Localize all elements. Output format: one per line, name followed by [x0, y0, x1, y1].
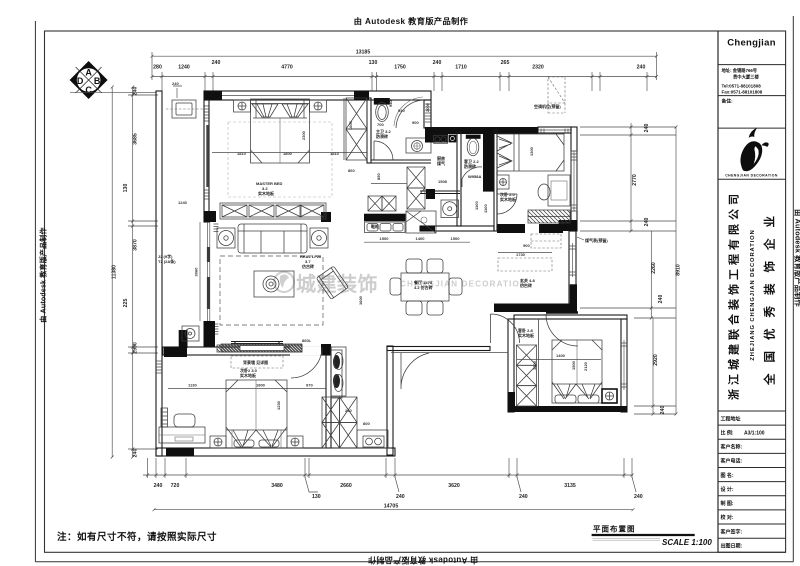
svg-text:3060: 3060	[194, 267, 199, 277]
svg-text:3870: 3870	[133, 239, 139, 251]
svg-text:1230: 1230	[276, 400, 281, 410]
svg-text:备住:: 备住:	[721, 98, 734, 105]
svg-text:1800: 1800	[532, 360, 537, 370]
svg-text:校 对:: 校 对:	[721, 514, 734, 521]
svg-text:地址: 金锡路766号: 地址: 金锡路766号	[722, 67, 758, 74]
svg-text:空调机位(预留): 空调机位(预留)	[534, 103, 561, 109]
svg-text:客户电话:: 客户电话:	[720, 458, 743, 465]
svg-text:工程地址: 工程地址	[721, 415, 741, 422]
svg-text:130: 130	[123, 184, 129, 193]
svg-text:制 图:: 制 图:	[721, 500, 734, 507]
svg-text:240: 240	[212, 60, 221, 66]
svg-text:1500: 1500	[451, 236, 461, 241]
svg-text:图 名:: 图 名:	[721, 472, 734, 479]
svg-text:由 Autodesk 教育版产品制作: 由 Autodesk 教育版产品制作	[39, 227, 48, 322]
svg-text:130: 130	[369, 60, 378, 66]
svg-text:4770: 4770	[281, 65, 293, 71]
svg-text:W958A: W958A	[468, 174, 481, 179]
svg-text:实木地板: 实木地板	[258, 190, 275, 196]
svg-text:1240: 1240	[178, 65, 190, 71]
svg-text:由 Autodesk 教育版产品制作: 由 Autodesk 教育版产品制作	[794, 209, 800, 307]
svg-text:A3/1:100: A3/1:100	[744, 430, 765, 436]
svg-text:1810: 1810	[330, 151, 340, 156]
svg-text:13185: 13185	[356, 50, 371, 56]
svg-text:8910: 8910	[676, 264, 682, 276]
svg-text:240: 240	[637, 65, 646, 71]
svg-text:1750: 1750	[394, 65, 406, 71]
svg-text:240: 240	[345, 408, 352, 413]
svg-text:Chengjian: Chengjian	[727, 38, 776, 49]
svg-text:由 Autodesk 教育版产品制作: 由 Autodesk 教育版产品制作	[354, 16, 469, 26]
svg-text:280: 280	[153, 65, 162, 71]
svg-text:2300: 2300	[301, 130, 306, 140]
svg-text:240: 240	[644, 124, 650, 133]
svg-text:4.2 仿古砖: 4.2 仿古砖	[414, 284, 433, 290]
svg-text:240: 240	[658, 295, 664, 304]
svg-text:225: 225	[123, 299, 129, 308]
svg-text:实木地板: 实木地板	[500, 196, 517, 202]
svg-text:Fax:0571-88101808: Fax:0571-88101808	[722, 90, 763, 95]
svg-text:1710: 1710	[455, 65, 467, 71]
svg-text:设 计:: 设 计:	[721, 486, 734, 493]
svg-text:1100: 1100	[474, 201, 479, 210]
svg-text:全国优秀装饰企业: 全国优秀装饰企业	[763, 205, 777, 386]
svg-text:240: 240	[133, 87, 139, 96]
svg-text:2990: 2990	[133, 342, 139, 354]
svg-text:SCALE 1:100: SCALE 1:100	[662, 538, 712, 547]
svg-text:2000: 2000	[425, 102, 430, 112]
svg-text:3135: 3135	[564, 483, 576, 489]
svg-text:仿古砖: 仿古砖	[520, 282, 532, 288]
svg-text:800: 800	[363, 421, 370, 426]
svg-text:浙江城建联合装饰工程有限公司: 浙江城建联合装饰工程有限公司	[727, 190, 741, 400]
svg-text:2660: 2660	[340, 483, 352, 489]
svg-text:1300: 1300	[529, 146, 534, 156]
svg-text:1400: 1400	[416, 236, 426, 241]
svg-text:3480: 3480	[271, 483, 283, 489]
svg-text:940: 940	[388, 100, 393, 107]
svg-text:240: 240	[396, 494, 405, 500]
svg-text:实木地板: 实木地板	[240, 372, 257, 378]
svg-text:720: 720	[171, 483, 180, 489]
svg-text:2770: 2770	[632, 174, 638, 186]
svg-text:Tel:0571-88101808: Tel:0571-88101808	[722, 84, 762, 89]
svg-text:900: 900	[412, 120, 419, 125]
svg-text:2320: 2320	[532, 65, 544, 71]
svg-text:注：如有尺寸不符，请按照实际尺寸: 注：如有尺寸不符，请按照实际尺寸	[57, 531, 217, 543]
svg-text:1600: 1600	[348, 120, 353, 130]
svg-text:940: 940	[398, 108, 405, 113]
svg-text:2260: 2260	[651, 262, 657, 274]
svg-text:MASTER BED: MASTER BED	[256, 181, 283, 186]
svg-text:1400: 1400	[556, 353, 566, 358]
svg-text:1100: 1100	[483, 204, 488, 213]
svg-text:CHENGJIAN DECORATION: CHENGJIAN DECORATION	[725, 174, 778, 178]
svg-text:A: A	[85, 68, 92, 78]
svg-text:1800: 1800	[283, 151, 293, 156]
svg-text:1500: 1500	[571, 360, 576, 370]
svg-text:1130: 1130	[188, 383, 197, 388]
svg-text:ZHEJIANG CHENGJIAN DECORATION: ZHEJIANG CHENGJIAN DECORATION	[750, 229, 756, 360]
svg-text:1600: 1600	[358, 295, 363, 305]
svg-text:实木地板: 实木地板	[518, 332, 535, 338]
svg-text:客户签字:: 客户签字:	[720, 528, 743, 535]
svg-text:防滑砖: 防滑砖	[376, 133, 388, 139]
svg-text:B: B	[94, 76, 101, 86]
svg-text:240: 240	[519, 494, 528, 500]
svg-text:970: 970	[306, 383, 313, 388]
svg-text:平面布置图: 平面布置图	[593, 524, 636, 534]
svg-text:11380: 11380	[112, 265, 118, 279]
svg-text:REAL LF20: REAL LF20	[300, 254, 322, 259]
svg-text:265: 265	[501, 60, 510, 66]
svg-text:3620: 3620	[448, 483, 460, 489]
svg-text:出图日期:: 出图日期:	[721, 543, 743, 550]
svg-text:1508: 1508	[438, 179, 448, 184]
svg-text:1810: 1810	[237, 151, 247, 156]
svg-text:14705: 14705	[384, 504, 399, 510]
svg-text:背景墙 见详图: 背景墙 见详图	[243, 359, 268, 365]
svg-text:T2 (2A条): T2 (2A条)	[158, 258, 176, 264]
svg-text:240: 240	[644, 218, 650, 227]
svg-text:D: D	[77, 76, 84, 86]
svg-text:比 例:: 比 例:	[721, 429, 734, 436]
svg-text:240: 240	[660, 406, 666, 415]
svg-text:1500: 1500	[380, 236, 390, 241]
svg-text:700: 700	[377, 122, 384, 127]
svg-text:860L: 860L	[302, 338, 312, 343]
svg-text:3685: 3685	[133, 133, 139, 145]
svg-text:煤气: 煤气	[437, 160, 445, 166]
svg-text:240: 240	[154, 483, 163, 489]
svg-text:240: 240	[634, 494, 643, 500]
svg-text:C: C	[85, 85, 92, 95]
svg-text:煤气表(预留): 煤气表(预留)	[585, 237, 608, 243]
svg-text:1240: 1240	[178, 200, 188, 205]
svg-text:2920: 2920	[653, 354, 659, 366]
svg-text:1800: 1800	[256, 383, 266, 388]
svg-text:由 Autodesk 教育版产品制作: 由 Autodesk 教育版产品制作	[368, 556, 478, 566]
svg-text:仿古砖: 仿古砖	[302, 263, 314, 269]
svg-text:900: 900	[523, 243, 530, 248]
svg-text:850: 850	[376, 173, 381, 180]
svg-text:贵中大厦三楼: 贵中大厦三楼	[733, 74, 759, 81]
svg-text:860: 860	[348, 168, 355, 173]
svg-text:240: 240	[133, 449, 139, 458]
svg-text:130: 130	[312, 494, 321, 500]
svg-text:240: 240	[433, 60, 442, 66]
svg-text:客户名称:: 客户名称:	[720, 444, 743, 451]
svg-text:2120: 2120	[583, 361, 588, 371]
svg-text:240: 240	[172, 81, 179, 86]
